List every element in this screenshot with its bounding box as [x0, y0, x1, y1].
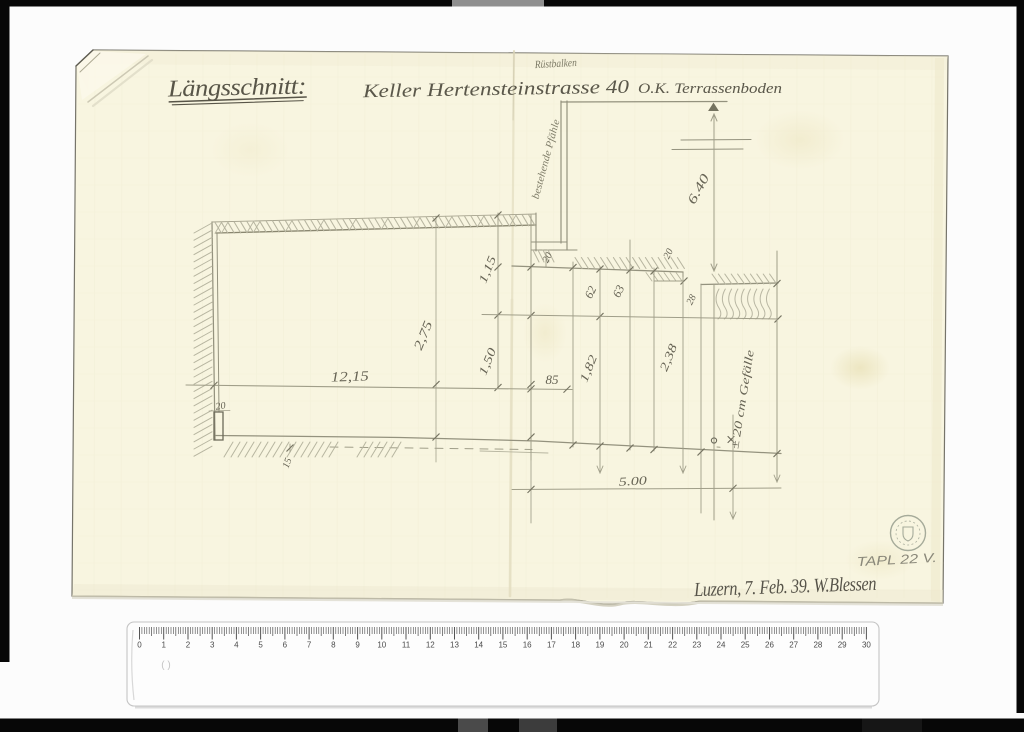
svg-text:( ): ( ) [161, 660, 170, 671]
svg-text:29: 29 [838, 641, 847, 650]
svg-text:15: 15 [498, 641, 507, 650]
svg-text:18: 18 [571, 641, 580, 650]
svg-text:23: 23 [692, 641, 701, 650]
svg-text:13: 13 [450, 641, 459, 650]
svg-text:10: 10 [377, 641, 386, 650]
svg-text:9: 9 [355, 641, 360, 650]
svg-text:3: 3 [210, 641, 215, 650]
svg-text:1: 1 [161, 641, 166, 650]
svg-text:12: 12 [426, 641, 435, 650]
svg-text:27: 27 [789, 641, 798, 650]
svg-text:O.K. Terrassenboden: O.K. Terrassenboden [638, 81, 782, 97]
svg-text:6: 6 [283, 641, 288, 650]
svg-text:8: 8 [331, 641, 336, 650]
svg-text:5.00: 5.00 [618, 473, 647, 488]
svg-text:5: 5 [258, 641, 263, 650]
svg-text:28: 28 [813, 641, 822, 650]
svg-text:19: 19 [595, 641, 604, 650]
svg-text:16: 16 [523, 641, 532, 650]
svg-text:12,15: 12,15 [331, 369, 370, 385]
svg-text:21: 21 [644, 641, 653, 650]
svg-text:26: 26 [765, 641, 774, 650]
svg-text:25: 25 [741, 641, 750, 650]
svg-text:20: 20 [620, 641, 629, 650]
svg-text:85: 85 [546, 372, 560, 387]
svg-text:24: 24 [717, 641, 726, 650]
svg-text:4: 4 [234, 641, 239, 650]
svg-text:7: 7 [307, 641, 312, 650]
svg-text:11: 11 [402, 641, 411, 650]
svg-text:2: 2 [186, 641, 191, 650]
svg-text:30: 30 [862, 641, 871, 650]
svg-text:14: 14 [474, 641, 483, 650]
svg-text:0: 0 [137, 641, 142, 650]
svg-text:17: 17 [547, 641, 556, 650]
svg-text:Rüstbalken: Rüstbalken [534, 57, 578, 71]
svg-text:22: 22 [668, 641, 677, 650]
